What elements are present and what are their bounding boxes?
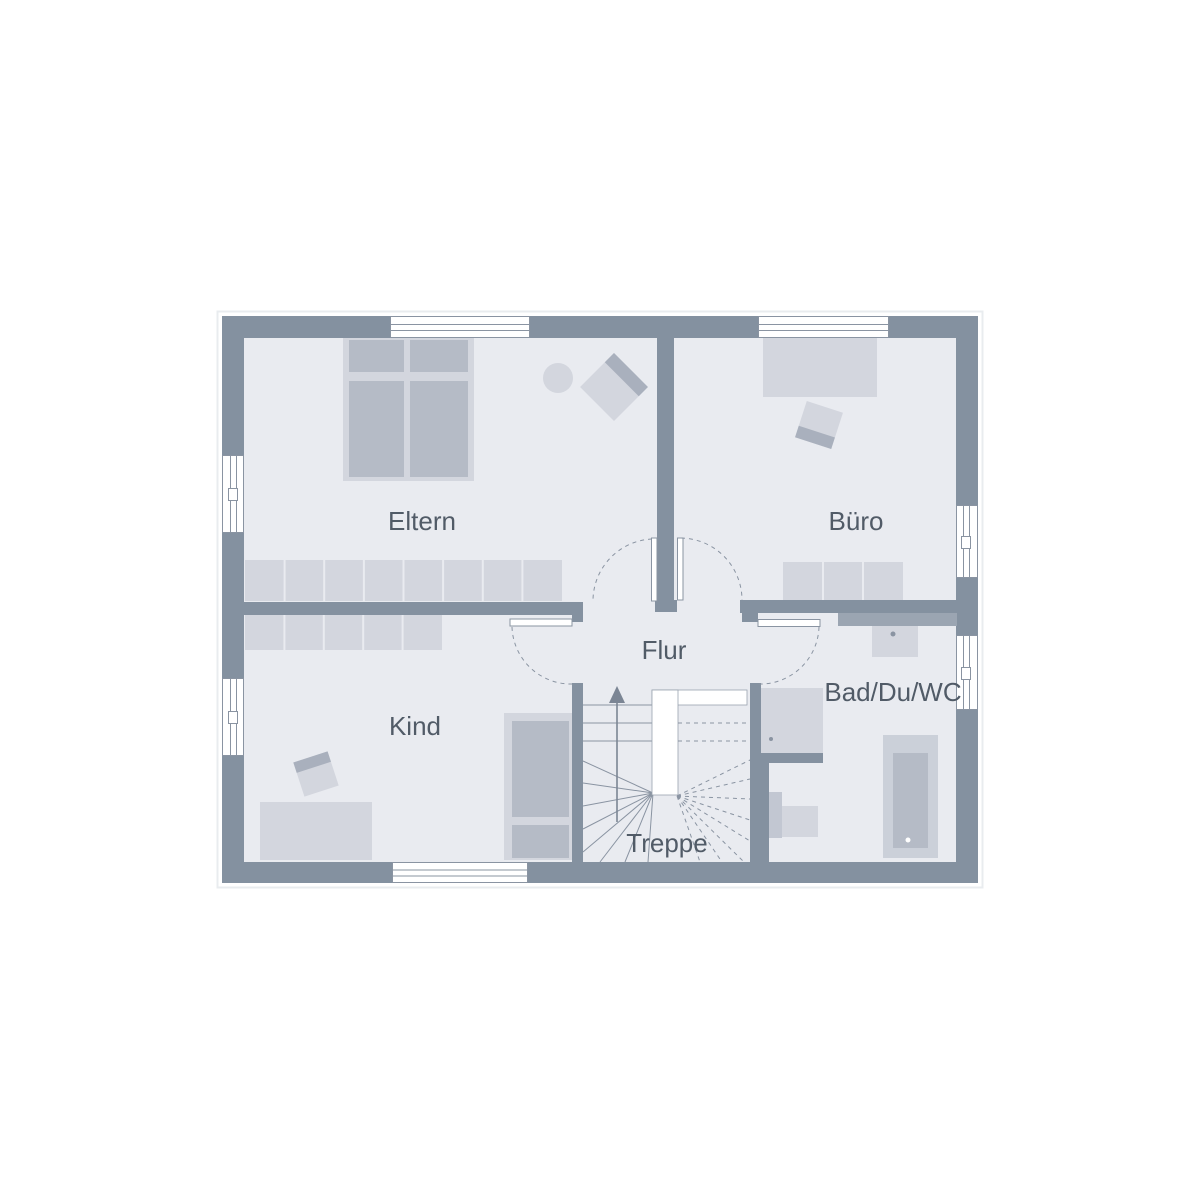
bathtub-drain	[906, 838, 911, 843]
shower-drain	[769, 737, 773, 741]
wall-top-1	[222, 316, 390, 338]
room-label-buero: Büro	[829, 506, 884, 536]
installation-wall-wc	[761, 753, 769, 862]
bed-pillow-left	[349, 340, 404, 372]
window-left-kind	[223, 679, 244, 756]
bed-pillow	[512, 825, 569, 858]
desk	[260, 802, 372, 860]
wall-bottom-1	[222, 862, 392, 883]
window-bottom-kind	[393, 863, 528, 883]
floor-plan: Eltern Büro Flur Kind Bad/Du/WC Treppe	[0, 0, 1200, 1200]
wall-right-3	[956, 710, 978, 883]
wall-eltern-kind	[222, 602, 583, 615]
door-leaf	[652, 538, 658, 601]
sideboard-body	[783, 562, 903, 600]
bed-mattress-right	[410, 381, 468, 477]
washbasin-tap	[891, 632, 896, 637]
room-label-kind: Kind	[389, 711, 441, 741]
door-leaf	[678, 538, 684, 600]
wall-left-3	[222, 756, 244, 883]
wardrobe-body	[245, 615, 442, 650]
wall-eltern-kind-jamb	[572, 602, 583, 622]
side-table	[543, 363, 573, 393]
window-top-eltern	[391, 317, 530, 338]
wall-right-1	[956, 316, 978, 505]
wall-left-1	[222, 316, 244, 455]
wall-bottom-2	[528, 862, 978, 883]
room-label-flur: Flur	[642, 635, 687, 665]
bed-mattress	[512, 721, 569, 817]
door-leaf	[758, 620, 820, 627]
wall-shower-stub	[761, 753, 823, 763]
toilet-bowl	[782, 806, 818, 837]
wall-buero-bad	[740, 600, 978, 613]
stairwell-void	[652, 690, 678, 795]
wall-stair-right	[750, 683, 761, 862]
wall-buero-bad-jamb	[742, 613, 758, 622]
bed-mattress-left	[349, 381, 404, 477]
wardrobe-kind	[245, 615, 442, 650]
installation-wall-washbasin	[838, 613, 957, 626]
wall-eltern-buero-foot	[655, 600, 677, 612]
wardrobe-eltern	[245, 560, 562, 601]
desk	[763, 338, 877, 397]
single-bed	[504, 713, 572, 860]
room-label-eltern: Eltern	[388, 506, 456, 536]
window-top-buero	[759, 317, 889, 338]
shower	[761, 688, 823, 753]
bed-pillow-right	[410, 340, 468, 372]
door-leaf	[510, 619, 572, 626]
room-label-bad: Bad/Du/WC	[824, 677, 961, 707]
window-right-buero	[957, 506, 978, 578]
toilet-tank	[769, 792, 782, 838]
wall-stair-left	[572, 683, 583, 862]
washbasin	[872, 626, 918, 657]
wall-eltern-buero	[657, 338, 674, 600]
wall-top-2	[530, 316, 758, 338]
sideboard	[783, 562, 903, 600]
room-label-treppe: Treppe	[626, 828, 707, 858]
bathtub-inner	[893, 753, 928, 848]
window-left-eltern	[223, 456, 244, 533]
